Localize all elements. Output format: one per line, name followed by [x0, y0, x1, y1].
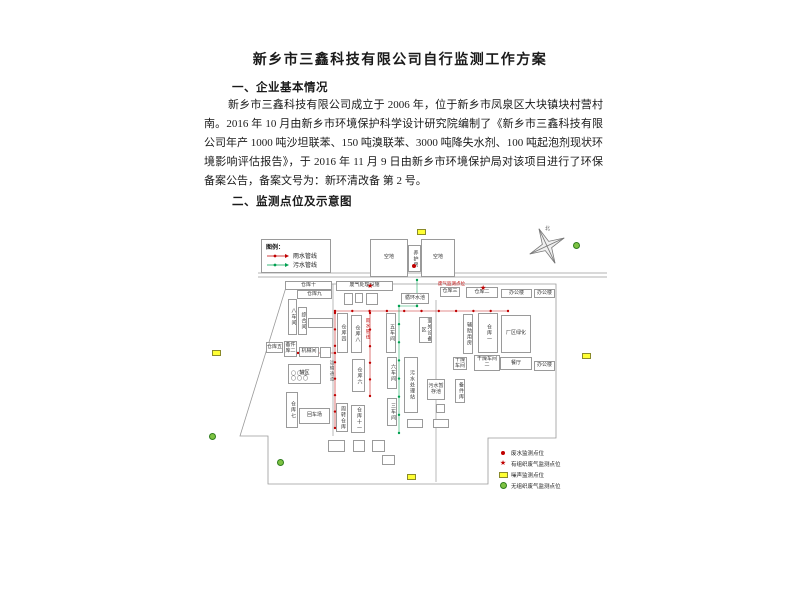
- fugitive-gas-point-icon: [573, 242, 580, 249]
- point-legend-label: 无组织废气监测点位: [511, 482, 561, 490]
- building-box: 仓库十一: [351, 405, 365, 433]
- building-box: 废气处理设施: [336, 281, 393, 291]
- building-box: 六车间: [387, 357, 397, 389]
- point-legend-label: 废水监测点位: [511, 449, 544, 457]
- building-box: [353, 440, 365, 452]
- building-box: 备件库: [455, 379, 465, 403]
- building-label: 空地: [433, 255, 443, 261]
- building-box: 罐区〇〇〇〇〇〇: [288, 364, 321, 384]
- building-label: 废气处理设施: [349, 283, 379, 289]
- building-box: 回车场: [299, 408, 330, 424]
- building-box: 五车间: [386, 313, 396, 353]
- noise-point-icon: [212, 350, 221, 356]
- building-box: [366, 293, 378, 305]
- building-box: [407, 419, 423, 428]
- building-label: 污水暂存池: [428, 384, 444, 396]
- section1-heading: 一、企业基本情况: [232, 79, 328, 95]
- building-label: 备件库: [457, 382, 463, 400]
- building-box: [320, 347, 331, 358]
- page-title: 新乡市三鑫科技有限公司自行监测工作方案: [0, 49, 800, 69]
- noise-point-icon: [498, 472, 508, 478]
- point-legend-item: 无组织废气监测点位: [498, 480, 561, 491]
- building-box: 仓库三: [440, 287, 460, 297]
- map-annotation: 运输通道: [330, 360, 335, 382]
- building-box: 仓库一: [478, 313, 498, 353]
- organized-gas-point-icon: ★: [367, 283, 373, 290]
- map-annotation: 雨水管线: [366, 318, 371, 340]
- building-box: 八车间: [288, 299, 297, 335]
- building-label: 仓库三: [442, 289, 457, 295]
- point-legend-item: 噪声监测点位: [498, 469, 561, 480]
- pipeline-sample-icon: [266, 253, 290, 259]
- building-box: 办公楼: [501, 289, 532, 298]
- building-box: 仓库七: [286, 392, 298, 428]
- fugitive-gas-point-icon: [209, 433, 216, 440]
- noise-point-icon: [582, 353, 591, 359]
- building-box: 综合间: [298, 307, 307, 335]
- building-label: 仓库九: [307, 292, 322, 298]
- building-box: 餐厅: [500, 357, 532, 370]
- building-box: 污水处理站: [404, 357, 418, 413]
- fugitive-gas-point-icon: [498, 482, 508, 489]
- building-box: 仓库四: [337, 313, 348, 353]
- building-box: 周转仓库: [336, 403, 348, 432]
- building-box: [436, 404, 445, 413]
- building-label: 仓库六: [356, 367, 362, 385]
- svg-text:北: 北: [545, 225, 550, 232]
- building-box: 仓库十: [285, 281, 332, 290]
- building-box: 室外设备区: [419, 317, 432, 343]
- building-box: 三车间: [387, 398, 397, 426]
- section1-paragraph: 新乡市三鑫科技有限公司成立于 2006 年，位于新乡市凤泉区大块镇块村营村南。2…: [204, 96, 603, 191]
- building-box: 干燥车间二: [474, 355, 500, 371]
- point-legend-label: 噪声监测点位: [511, 471, 544, 479]
- building-label: 辅助用房: [465, 322, 471, 346]
- pipeline-legend-item: 污水管线: [266, 260, 326, 269]
- site-monitoring-map: 图例： 雨水管线 污水管线 北 废水监测点位★有组织废气监测点位噪声监测点位无组…: [200, 218, 610, 508]
- building-box: 机械间: [299, 347, 319, 357]
- building-box: 空地: [421, 239, 455, 277]
- building-label: 仓库一: [485, 324, 491, 342]
- point-legend-label: 有组织废气监测点位: [511, 460, 561, 468]
- wastewater-point-icon: [412, 264, 416, 268]
- pipeline-legend-label: 污水管线: [293, 260, 317, 269]
- building-label: 回车场: [307, 413, 322, 419]
- building-box: [382, 455, 395, 465]
- building-box: [308, 318, 333, 328]
- building-label: 厂区绿化: [506, 331, 526, 337]
- point-legend-item: ★有组织废气监测点位: [498, 458, 561, 469]
- building-label: 八车间: [290, 308, 296, 326]
- tank-icons: 〇〇〇〇〇〇: [291, 372, 309, 382]
- monitoring-point-legend: 废水监测点位★有组织废气监测点位噪声监测点位无组织废气监测点位: [498, 447, 561, 491]
- building-label: 污水处理站: [408, 370, 414, 400]
- building-box: 办公楼: [534, 361, 555, 371]
- building-label: 三车间: [389, 403, 395, 421]
- building-label: 干燥车间: [454, 358, 466, 370]
- building-box: 备件库二: [284, 341, 297, 357]
- building-box: 仓库八: [351, 315, 362, 353]
- building-box: 仓库六: [352, 359, 365, 392]
- building-box: [328, 440, 345, 452]
- building-box: [344, 293, 353, 305]
- building-label: 周转仓库: [339, 406, 345, 430]
- building-label: 备件库二: [285, 343, 296, 355]
- building-label: 六车间: [389, 364, 395, 382]
- building-box: [372, 440, 385, 452]
- building-label: 仓库十一: [355, 407, 361, 431]
- building-box: 仓库九: [297, 290, 332, 299]
- building-box: 循环水池: [401, 293, 429, 304]
- building-label: 干燥车间二: [475, 357, 499, 369]
- building-box: 干燥车间: [453, 357, 467, 370]
- section2-heading: 二、监测点位及示意图: [232, 193, 352, 209]
- building-label: 空地: [384, 255, 394, 261]
- building-box: 厂区绿化: [501, 315, 531, 353]
- building-label: 五车间: [388, 324, 394, 342]
- building-label: 仓库十: [301, 283, 316, 289]
- building-box: [355, 293, 363, 303]
- building-label: 室外设备区: [420, 318, 432, 342]
- organized-gas-point-icon: ★: [480, 285, 486, 292]
- building-label: 仓库四: [340, 324, 346, 342]
- fugitive-gas-point-icon: [277, 459, 284, 466]
- pipeline-sample-icon: [266, 262, 290, 268]
- building-label: 循环水池: [405, 296, 425, 302]
- pipeline-legend-item: 雨水管线: [266, 251, 326, 260]
- building-label: 办公楼: [537, 363, 552, 369]
- document-page: 新乡市三鑫科技有限公司自行监测工作方案 一、企业基本情况 新乡市三鑫科技有限公司…: [0, 0, 800, 600]
- building-box: 养护房: [408, 245, 421, 272]
- noise-point-icon: [417, 229, 426, 235]
- building-label: 机械间: [301, 349, 316, 355]
- building-label: 餐厅: [511, 361, 521, 367]
- wastewater-point-icon: [498, 451, 508, 455]
- building-label: 综合间: [300, 312, 306, 330]
- point-legend-item: 废水监测点位: [498, 447, 561, 458]
- noise-point-icon: [407, 474, 416, 480]
- building-box: 污水暂存池: [427, 379, 445, 400]
- building-box: 辅助用房: [463, 314, 473, 354]
- building-label: 仓库七: [289, 401, 295, 419]
- compass-icon: 北: [525, 224, 569, 268]
- building-box: 仓库五: [266, 342, 283, 353]
- pipeline-legend-title: 图例：: [266, 242, 326, 251]
- building-box: [433, 419, 449, 428]
- building-label: 办公楼: [509, 291, 524, 297]
- building-label: 办公楼: [537, 291, 552, 297]
- pipeline-legend: 图例： 雨水管线 污水管线: [261, 239, 331, 273]
- building-label: 仓库五: [267, 345, 282, 351]
- building-box: 办公楼: [534, 289, 555, 298]
- pipeline-legend-label: 雨水管线: [293, 251, 317, 260]
- map-annotation: 废气监测点位: [438, 281, 465, 286]
- building-label: 仓库八: [354, 325, 360, 343]
- organized-gas-point-icon: ★: [498, 460, 508, 467]
- building-box: 空地: [370, 239, 408, 277]
